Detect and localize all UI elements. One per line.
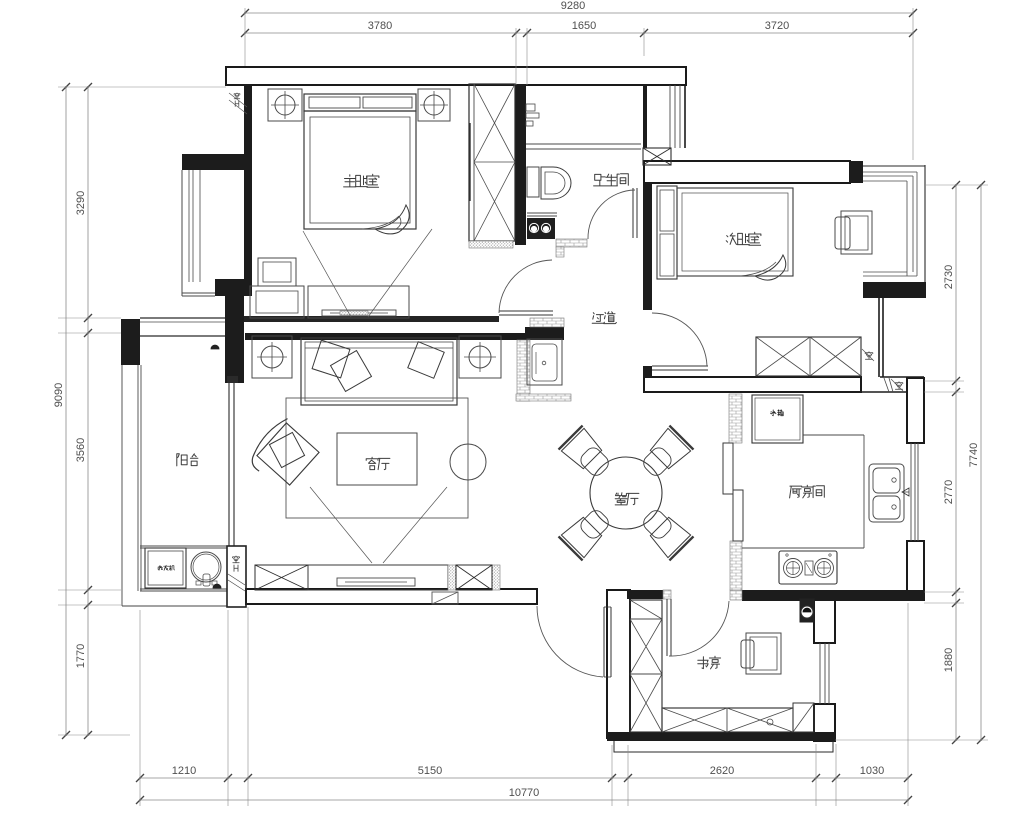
svg-text:1030: 1030: [860, 765, 884, 777]
svg-text:1210: 1210: [172, 765, 196, 777]
svg-text:2770: 2770: [943, 480, 955, 504]
svg-text:5150: 5150: [418, 765, 442, 777]
svg-text:7740: 7740: [968, 443, 980, 467]
svg-text:1880: 1880: [943, 648, 955, 672]
svg-text:2730: 2730: [943, 265, 955, 289]
svg-text:1650: 1650: [572, 20, 596, 32]
svg-text:2620: 2620: [710, 765, 734, 777]
svg-text:1770: 1770: [75, 644, 87, 668]
svg-text:10770: 10770: [509, 787, 540, 799]
svg-text:3560: 3560: [75, 438, 87, 462]
svg-text:3290: 3290: [75, 191, 87, 215]
svg-text:9090: 9090: [53, 383, 65, 407]
svg-text:9280: 9280: [561, 0, 585, 12]
svg-text:3720: 3720: [765, 20, 789, 32]
svg-text:3780: 3780: [368, 20, 392, 32]
